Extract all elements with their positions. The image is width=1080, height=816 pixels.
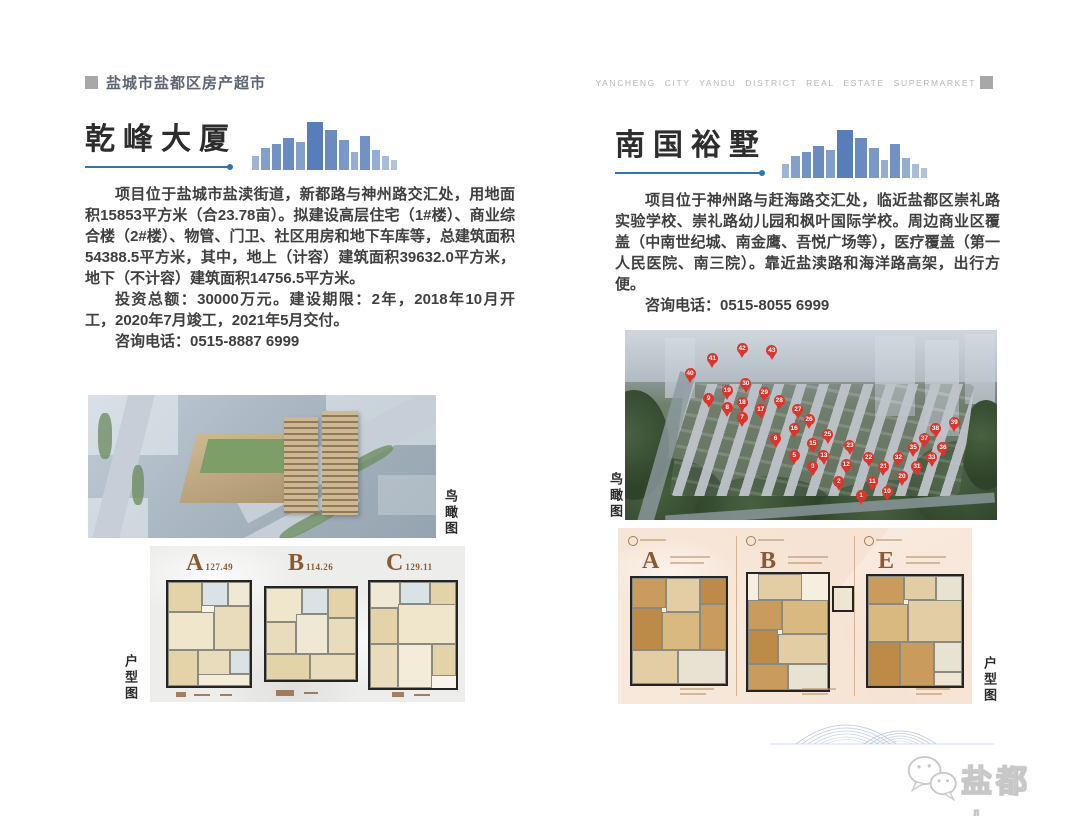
plan-letter: A <box>642 548 659 574</box>
floorplan-panel-qianfeng: A127.49 B114.26 <box>150 546 465 702</box>
left-phone: 咨询电话：0515-8887 6999 <box>85 331 515 352</box>
plan-letter: A <box>186 550 203 576</box>
right-floorplan-caption: 户型图 <box>980 656 999 704</box>
right-project-description: 项目位于神州路与赶海路交汇处，临近盐都区崇礼路实验学校、崇礼路幼儿园和枫叶国际学… <box>615 190 1000 316</box>
map-pin: 32 <box>893 452 904 463</box>
plan-letter: B <box>288 550 304 576</box>
left-aerial-caption: 鸟瞰图 <box>441 489 460 537</box>
map-pin: 26 <box>804 414 815 425</box>
header-left-square <box>85 76 98 89</box>
floorplan-A: A <box>618 528 736 704</box>
floorplan-B: B114.26 <box>260 550 358 700</box>
floorplan-A: A127.49 <box>158 550 256 700</box>
wechat-icon <box>905 752 961 804</box>
plan-letter: B <box>760 548 776 574</box>
header-right-square <box>980 76 993 89</box>
map-pin: 37 <box>919 433 930 444</box>
map-pin: 12 <box>841 459 852 470</box>
map-pin: 5 <box>789 450 800 461</box>
map-pin: 41 <box>707 353 718 364</box>
map-pin: 28 <box>774 395 785 406</box>
skyline-buildings-icon <box>780 126 930 182</box>
map-pin: 6 <box>770 433 781 444</box>
floorplan-E: E <box>854 528 972 704</box>
map-pin: 29 <box>759 387 770 398</box>
map-pin: 10 <box>882 486 893 497</box>
map-pin: 36 <box>937 442 948 453</box>
left-paragraph-2: 投资总额：30000万元。建设期限：2年，2018年10月开工，2020年7月竣… <box>85 289 515 331</box>
map-pin: 1 <box>856 490 867 501</box>
left-paragraph-1: 项目位于盐城市盐渎街道，新都路与神州路交汇处，用地面积15853平方米（合23.… <box>85 184 515 289</box>
right-project-title: 南国裕墅 <box>615 128 767 164</box>
map-pin: 33 <box>926 452 937 463</box>
map-pin: 19 <box>722 385 733 396</box>
left-project-title: 乾峰大厦 <box>85 122 237 158</box>
plan-letter: E <box>878 548 894 574</box>
map-pin: 11 <box>867 476 878 487</box>
aerial-photo-nanguo: 1235678910111213151617181920212223252627… <box>625 330 997 520</box>
plan-letter: C <box>386 550 403 576</box>
brochure-page: 盐城市盐都区房产超市 YANCHENG CITY YANDU DISTRICT … <box>0 0 1080 816</box>
pin-layer: 1235678910111213151617181920212223252627… <box>625 330 997 520</box>
map-pin: 42 <box>737 343 748 354</box>
map-pin: 16 <box>789 423 800 434</box>
floorplan-C: C129.11 <box>362 550 460 700</box>
map-pin: 20 <box>897 471 908 482</box>
map-pin: 38 <box>930 423 941 434</box>
floorplan-B: B <box>736 528 854 704</box>
plan-area: 114.26 <box>306 562 333 572</box>
map-pin: 3 <box>807 461 818 472</box>
left-project-description: 项目位于盐城市盐渎街道，新都路与神州路交汇处，用地面积15853平方米（合23.… <box>85 184 515 352</box>
left-project-section: 乾峰大厦 项目位于盐城市盐渎街道，新都路与神州路交汇处，用地面积15853平方米… <box>85 118 515 352</box>
title-underline <box>615 172 763 174</box>
floorplan-panel-nanguo: A B <box>618 528 972 704</box>
map-pin: 25 <box>822 429 833 440</box>
skyline-buildings-icon <box>250 118 400 174</box>
map-pin: 39 <box>949 417 960 428</box>
plan-area: 127.49 <box>205 562 233 572</box>
wave-mountains-icon <box>768 704 996 750</box>
header-title-cn: 盐城市盐都区房产超市 <box>106 72 266 93</box>
map-pin: 43 <box>766 345 777 356</box>
map-pin: 22 <box>863 452 874 463</box>
title-underline <box>85 166 231 168</box>
map-pin: 35 <box>908 442 919 453</box>
map-pin: 15 <box>807 438 818 449</box>
footer-brand: 盐都人 <box>905 748 1065 808</box>
right-project-section: 南国裕墅 项目位于神州路与赶海路交汇处，临近盐都区崇礼路实验学校、崇礼路幼儿园和… <box>615 118 1000 316</box>
map-pin: 9 <box>703 393 714 404</box>
map-pin: 18 <box>737 397 748 408</box>
right-aerial-caption: 鸟瞰图 <box>606 472 625 520</box>
map-pin: 31 <box>911 461 922 472</box>
map-pin: 27 <box>792 404 803 415</box>
right-phone: 咨询电话：0515-8055 6999 <box>615 295 1000 316</box>
header-title-en: YANCHENG CITY YANDU DISTRICT REAL ESTATE… <box>595 78 976 88</box>
right-paragraph-1: 项目位于神州路与赶海路交汇处，临近盐都区崇礼路实验学校、崇礼路幼儿园和枫叶国际学… <box>615 190 1000 295</box>
map-pin: 30 <box>740 378 751 389</box>
map-pin: 13 <box>818 450 829 461</box>
map-pin: 21 <box>878 461 889 472</box>
map-pin: 40 <box>685 368 696 379</box>
aerial-photo-qianfeng <box>88 395 436 538</box>
plan-area: 129.11 <box>405 562 432 572</box>
left-floorplan-caption: 户型图 <box>121 654 140 702</box>
map-pin: 23 <box>844 440 855 451</box>
footer-brand-name: 盐都人 <box>961 756 1065 816</box>
